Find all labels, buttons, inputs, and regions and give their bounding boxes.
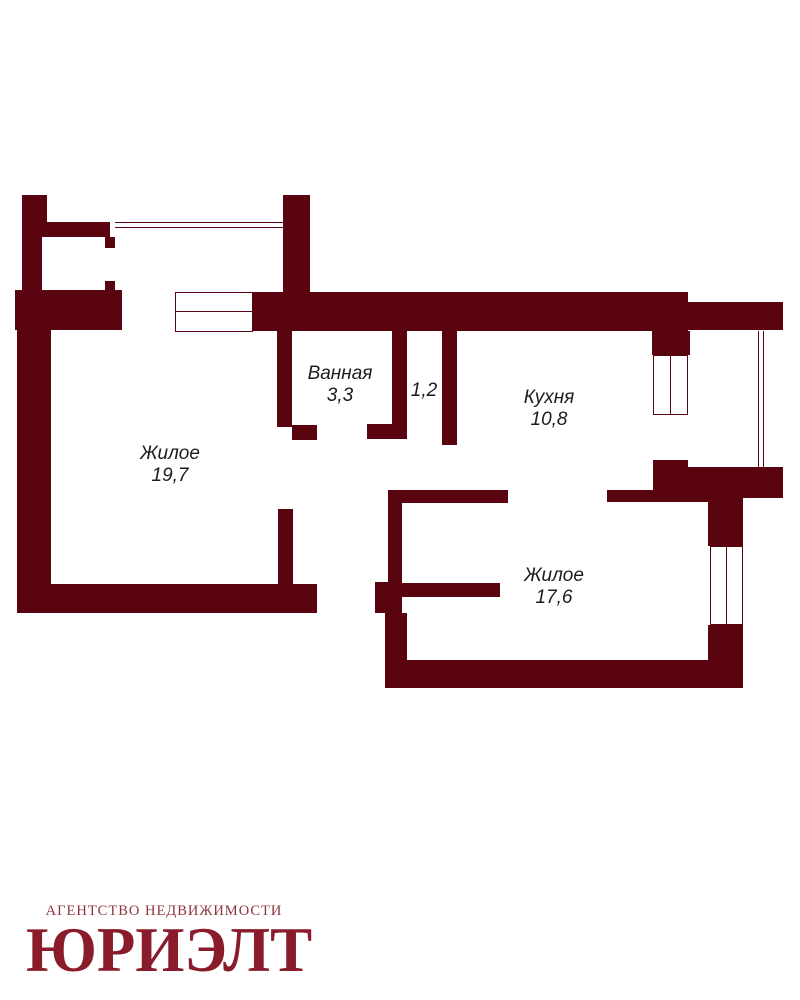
agency-logo: АГЕНТСТВО НЕДВИЖИМОСТИ ЮРИЭЛТ <box>26 903 316 980</box>
window-kitchen <box>653 355 688 415</box>
wall-segment <box>398 583 500 597</box>
room-label-living-17: Жилое 17,6 <box>504 565 604 609</box>
wall-segment <box>22 195 47 237</box>
room-name: Кухня <box>499 387 599 409</box>
wall-segment <box>385 613 407 660</box>
wall-segment <box>388 490 508 503</box>
window-top <box>115 222 283 228</box>
room-name: Жилое <box>105 443 235 465</box>
divider-line <box>670 355 671 415</box>
room-label-kitchen: Кухня 10,8 <box>499 387 599 431</box>
agency-brand: ЮРИЭЛТ <box>26 920 316 980</box>
room-area: 17,6 <box>504 587 604 609</box>
wall-segment <box>292 425 317 440</box>
room-name: Жилое <box>504 565 604 587</box>
wall-segment <box>442 331 457 445</box>
wall-segment <box>392 331 407 426</box>
room-label-bathroom: Ванная 3,3 <box>295 363 385 407</box>
room-label-living-19: Жилое 19,7 <box>105 443 235 487</box>
room-label-corridor: 1,2 <box>404 380 444 402</box>
wall-segment <box>652 331 690 355</box>
wall-segment <box>388 503 402 584</box>
wall-segment <box>367 424 407 439</box>
room-name: Ванная <box>295 363 385 385</box>
closet <box>175 292 253 332</box>
wall-segment <box>283 195 310 292</box>
wall-segment <box>385 660 743 688</box>
wall-segment <box>17 584 317 613</box>
wall-segment <box>47 222 110 237</box>
room-area: 3,3 <box>295 385 385 407</box>
wall-segment <box>708 496 743 546</box>
divider-line <box>726 546 727 625</box>
window-right <box>758 331 764 467</box>
room-area: 1,2 <box>404 380 444 402</box>
wall-segment <box>105 237 115 248</box>
divider-line <box>175 311 253 312</box>
wall-segment <box>277 331 292 427</box>
room-area: 19,7 <box>105 465 235 487</box>
wall-segment <box>15 290 122 330</box>
wall-segment <box>688 302 783 330</box>
room-area: 10,8 <box>499 409 599 431</box>
wall-segment <box>253 292 688 331</box>
wall-segment <box>607 490 708 502</box>
floor-plan: Жилое 19,7 Ванная 3,3 1,2 Кухня 10,8 Жил… <box>0 0 800 1000</box>
wall-segment <box>17 330 51 612</box>
wall-segment <box>278 509 293 585</box>
wall-segment <box>22 237 42 290</box>
window-living2 <box>710 546 743 625</box>
